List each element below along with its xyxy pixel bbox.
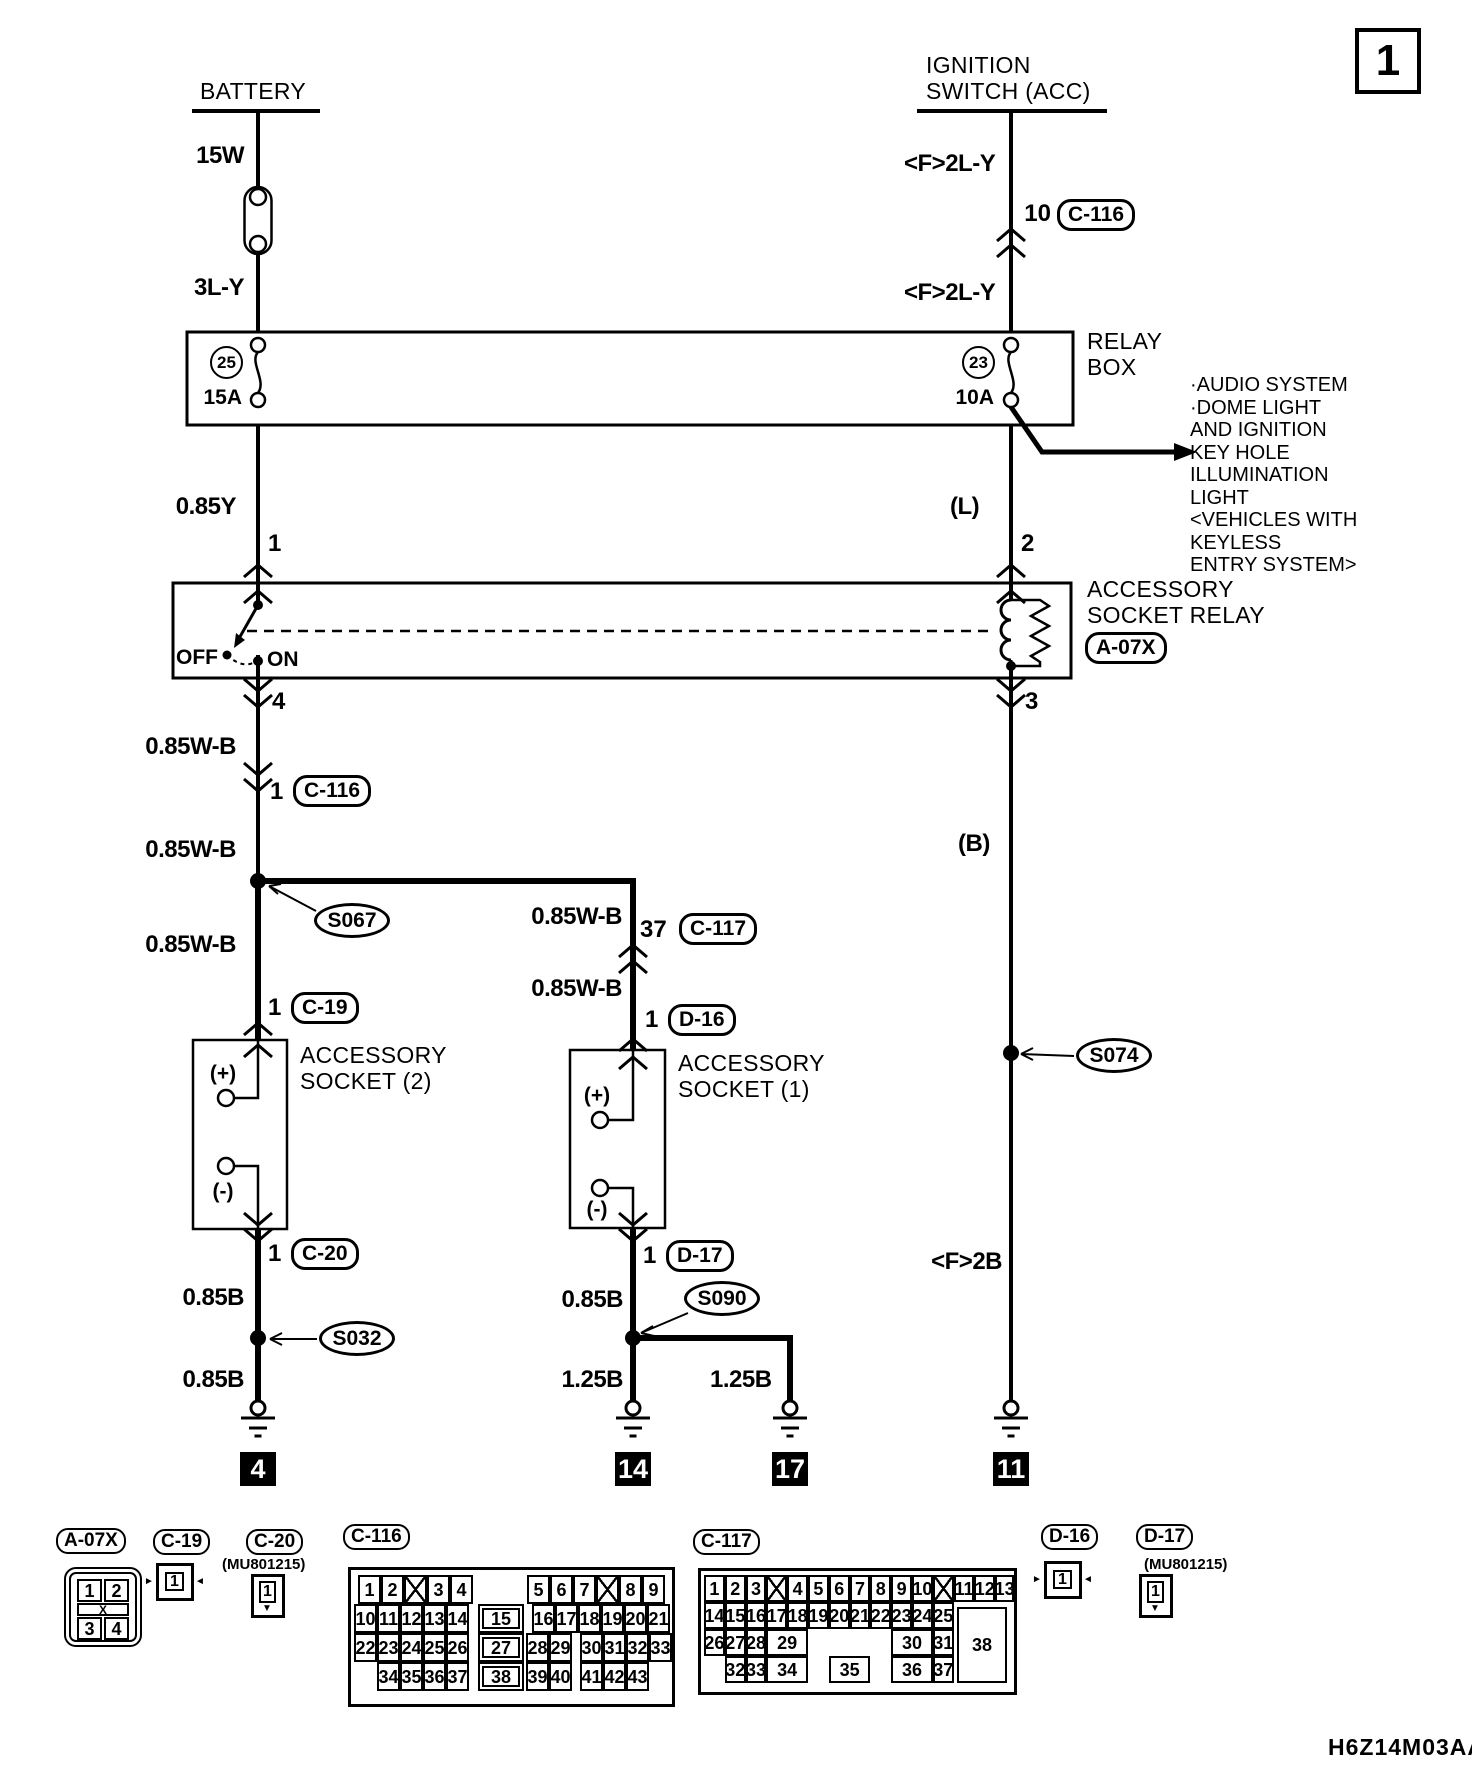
- connector-pin: 3: [746, 1575, 767, 1602]
- connector-pin: 6: [829, 1575, 850, 1602]
- wire-label-085b-3: 0.85B: [547, 1286, 623, 1314]
- connector-pin: 11: [377, 1604, 400, 1633]
- splice-s074: S074: [1076, 1038, 1152, 1073]
- connector-pin: 6: [550, 1575, 573, 1604]
- connector-tag-c117: C-117: [679, 913, 757, 945]
- connector-pin: 40: [549, 1662, 572, 1691]
- bottom-tag-c117: C-117: [693, 1529, 760, 1555]
- socket2-minus-label: (-): [200, 1180, 246, 1204]
- connector-pin: 33: [649, 1633, 672, 1662]
- wire-label-125b-2: 1.25B: [710, 1366, 772, 1394]
- blocked-pin-icon: [933, 1575, 954, 1602]
- connector-pin: 34: [766, 1656, 808, 1683]
- connector-pin: 1: [77, 1579, 102, 1602]
- connector-pin: 12: [400, 1604, 423, 1633]
- coil-junction-dot: [1006, 661, 1016, 671]
- connector-pin: 14: [446, 1604, 469, 1633]
- fuse-rating-10a: 10A: [938, 386, 994, 410]
- connector-pin: 29: [766, 1629, 808, 1656]
- connector-arrow-icon: ◄: [194, 1574, 206, 1589]
- connector-pin: 22: [870, 1602, 891, 1629]
- connector-pin: 9: [642, 1575, 665, 1604]
- fuse-25-icon: [251, 338, 265, 407]
- wire-label-b: (B): [958, 830, 990, 858]
- blocked-pin-icon: [766, 1575, 787, 1602]
- connector-tag-d17: D-17: [666, 1240, 734, 1272]
- relay-off-label: OFF: [160, 646, 218, 670]
- connector-pin: 31: [933, 1629, 954, 1656]
- connector-pin: 13: [423, 1604, 446, 1633]
- splice-s032: S032: [319, 1321, 395, 1356]
- connector-pin: 22: [354, 1633, 377, 1662]
- bottom-tag-c19: C-19: [153, 1529, 210, 1555]
- relay-pin-3: 3: [1025, 688, 1038, 716]
- relay-box-label: RELAY BOX: [1087, 328, 1162, 380]
- connector-pin: 36: [423, 1662, 446, 1691]
- socket1-minus-label: (-): [574, 1198, 620, 1222]
- connector-pin: 5: [808, 1575, 829, 1602]
- connector-pin: 31: [603, 1633, 626, 1662]
- wire-label-3l-y: 3L-Y: [150, 274, 244, 302]
- connector-pin: 2: [104, 1579, 129, 1602]
- connector-tail-icon: ▼: [260, 1603, 274, 1615]
- connector-arrow-icon: ►: [143, 1574, 155, 1589]
- connector-tag-c116-top: C-116: [1057, 199, 1135, 231]
- connector-pin: 37: [933, 1656, 954, 1683]
- relay-pin-1: 1: [268, 530, 281, 558]
- connector-pin: 37: [446, 1662, 469, 1691]
- connector-pin: 39: [526, 1662, 549, 1691]
- connector-pin: 16: [746, 1602, 767, 1629]
- pinout-c20: 1▼: [251, 1574, 285, 1618]
- connector-pin: 32: [626, 1633, 649, 1662]
- connector-pin: 43: [626, 1662, 649, 1691]
- accessory-socket-1-label: ACCESSORY SOCKET (1): [678, 1050, 825, 1102]
- relay-pin-4: 4: [272, 688, 285, 716]
- connector-pin: 12: [974, 1575, 995, 1602]
- ignition-switch-source-label: IGNITION SWITCH (ACC): [926, 52, 1091, 104]
- connector-pin: X: [77, 1603, 129, 1616]
- ground-box-17: 17: [772, 1452, 808, 1486]
- pinout-c117: 1234567891011121314151617181920212223242…: [698, 1568, 1017, 1695]
- ground-box-4: 4: [240, 1452, 276, 1486]
- splice-s067: S067: [314, 903, 390, 938]
- connector-pin: 41: [580, 1662, 603, 1691]
- ground-icons: [241, 1401, 1028, 1436]
- wire-label-085wb-2: 0.85W-B: [130, 836, 236, 864]
- connector-pin: 8: [619, 1575, 642, 1604]
- connector-pin: 2: [725, 1575, 746, 1602]
- fuse-rating-15a: 15A: [186, 386, 242, 410]
- connector-pin: 23: [891, 1602, 912, 1629]
- connector-pin: 1: [704, 1575, 725, 1602]
- pin-1-c19: 1: [268, 994, 281, 1022]
- pinout-c19: 1►◄: [156, 1563, 194, 1601]
- connector-tag-c116-left: C-116: [293, 775, 371, 807]
- note-arrow-icon: [1011, 407, 1197, 461]
- c20-part-number: (MU801215): [222, 1556, 305, 1573]
- pinout-a07x: 12X34: [64, 1567, 142, 1647]
- wire-label-085wb-1: 0.85W-B: [130, 733, 236, 761]
- connector-pin: 27: [725, 1629, 746, 1656]
- connector-pin: 23: [377, 1633, 400, 1662]
- connector-pin: 7: [573, 1575, 596, 1604]
- connector-pin: 1: [259, 1581, 276, 1603]
- pin-10-label: 10: [1023, 200, 1051, 228]
- connector-pin: 1: [165, 1572, 184, 1591]
- connector-pin: 16: [532, 1604, 555, 1633]
- connector-pin: 38: [478, 1662, 524, 1691]
- connector-pin: 4: [787, 1575, 808, 1602]
- bottom-tag-a07x: A-07X: [56, 1528, 126, 1554]
- connector-pin: 33: [746, 1656, 767, 1683]
- connector-pin: 13: [995, 1575, 1014, 1602]
- connector-pin: 20: [829, 1602, 850, 1629]
- connector-pin: 32: [725, 1656, 746, 1683]
- wire-label-085b-2: 0.85B: [168, 1366, 244, 1394]
- bottom-tag-d17: D-17: [1136, 1524, 1193, 1550]
- connector-tag-c19: C-19: [291, 992, 359, 1024]
- d17-part-number: (MU801215): [1144, 1556, 1227, 1573]
- fuse-number-25: 25: [210, 346, 243, 379]
- ground-box-14: 14: [615, 1452, 651, 1486]
- accessory-socket-relay-label: ACCESSORY SOCKET RELAY: [1087, 576, 1265, 628]
- connector-pin: 36: [891, 1656, 933, 1683]
- wiring-diagram-svg: [0, 0, 1472, 1776]
- blocked-pin-icon: [596, 1575, 619, 1604]
- ground-box-11: 11: [993, 1452, 1029, 1486]
- blocked-pin-icon: [404, 1575, 427, 1604]
- battery-source-label: BATTERY: [200, 78, 306, 104]
- connector-pin: 21: [850, 1602, 871, 1629]
- connector-arrow-icon: ►: [1031, 1572, 1043, 1587]
- connector-pin: 14: [704, 1602, 725, 1629]
- splice-s090: S090: [684, 1281, 760, 1316]
- connector-pin: 25: [933, 1602, 954, 1629]
- connector-pin: 26: [446, 1633, 469, 1662]
- connector-pin: 5: [527, 1575, 550, 1604]
- connector-pin: 11: [954, 1575, 975, 1602]
- socket-terminal-icons: [218, 1090, 608, 1196]
- connector-pin: 15: [725, 1602, 746, 1629]
- pin-1-d16: 1: [645, 1006, 658, 1034]
- wire-label-085b-1: 0.85B: [168, 1284, 244, 1312]
- bottom-tag-c116: C-116: [343, 1524, 410, 1550]
- connector-pin: 35: [829, 1656, 871, 1683]
- connector-pin: 42: [603, 1662, 626, 1691]
- connector-pin: 27: [478, 1633, 524, 1662]
- pin-1-c20: 1: [268, 1240, 281, 1268]
- wire-label-085wb-3: 0.85W-B: [130, 931, 236, 959]
- connector-tag-c20: C-20: [291, 1238, 359, 1270]
- connector-pin: 24: [912, 1602, 933, 1629]
- connector-pin: 17: [766, 1602, 787, 1629]
- connector-pin: 2: [381, 1575, 404, 1604]
- connector-pin: 19: [601, 1604, 624, 1633]
- connector-pin: 38: [957, 1607, 1007, 1683]
- relay-on-label: ON: [267, 648, 299, 672]
- connector-pin: 10: [912, 1575, 933, 1602]
- fuse-number-23: 23: [962, 346, 995, 379]
- connector-pin: 30: [580, 1633, 603, 1662]
- connector-pin: 8: [870, 1575, 891, 1602]
- wire-label-f2l-y-1: <F>2L-Y: [904, 150, 995, 178]
- connector-tag-a07x: A-07X: [1085, 632, 1167, 664]
- connector-pin: 24: [400, 1633, 423, 1662]
- connector-tag-d16: D-16: [668, 1004, 736, 1036]
- fusible-link-icon: [245, 187, 272, 254]
- relay-box-outline: [187, 332, 1073, 425]
- connector-pin: 7: [850, 1575, 871, 1602]
- connector-pin: 30: [891, 1629, 933, 1656]
- connector-pin: 18: [578, 1604, 601, 1633]
- connector-pin: 20: [624, 1604, 647, 1633]
- socket2-plus-label: (+): [200, 1062, 246, 1086]
- connector-pin: 3: [427, 1575, 450, 1604]
- connector-pin: 1: [1053, 1570, 1072, 1589]
- connector-pin: 29: [549, 1633, 572, 1662]
- wiring-diagram-page: 1 BATTERY IGNITION SWITCH (ACC) 15W 3L-Y…: [0, 0, 1472, 1776]
- wire-label-125b-1: 1.25B: [544, 1366, 623, 1394]
- connector-pin: 1: [358, 1575, 381, 1604]
- socket1-plus-label: (+): [574, 1084, 620, 1108]
- wire-label-085y: 0.85Y: [148, 493, 236, 521]
- connector-pin: 25: [423, 1633, 446, 1662]
- connector-pin: 34: [377, 1662, 400, 1691]
- connector-pin: 26: [704, 1629, 725, 1656]
- connector-arrow-icon: ◄: [1082, 1572, 1094, 1587]
- wire-label-15w: 15W: [150, 142, 244, 170]
- connector-pin: 21: [647, 1604, 670, 1633]
- wire-label-l: (L): [950, 493, 979, 521]
- resistor-icon: [1011, 600, 1049, 666]
- fuse-23-icon: [1004, 338, 1018, 407]
- wire-label-f2b: <F>2B: [928, 1248, 1002, 1276]
- connector-pin: 35: [400, 1662, 423, 1691]
- connector-pin: 17: [555, 1604, 578, 1633]
- bottom-tag-c20: C-20: [246, 1529, 303, 1555]
- circuit-note-text: ·AUDIO SYSTEM ·DOME LIGHT AND IGNITION K…: [1190, 374, 1357, 577]
- relay-pin-2: 2: [1021, 530, 1034, 558]
- pinout-d16: 1►◄: [1044, 1561, 1082, 1599]
- wire-label-085wb-4: 0.85W-B: [516, 903, 622, 931]
- connector-tail-icon: ▼: [1148, 1603, 1162, 1615]
- connector-pin: 28: [526, 1633, 549, 1662]
- pinout-c116: 1234567891011121314151617181920212223242…: [348, 1567, 675, 1707]
- pinout-d17: 1▼: [1139, 1574, 1173, 1618]
- connector-pin: 19: [808, 1602, 829, 1629]
- pin-37-label: 37: [640, 916, 667, 944]
- pin-1-d17: 1: [643, 1242, 656, 1270]
- pin-1-c116: 1: [270, 778, 283, 806]
- document-code: H6Z14M03AA: [1328, 1734, 1472, 1761]
- connector-pin: 3: [77, 1617, 102, 1640]
- connector-pin: 28: [746, 1629, 767, 1656]
- wire-label-085wb-5: 0.85W-B: [516, 975, 622, 1003]
- wire-label-f2l-y-2: <F>2L-Y: [904, 279, 995, 307]
- relay-coil-icon: [1001, 600, 1011, 666]
- connector-pin: 9: [891, 1575, 912, 1602]
- connector-pin: 4: [450, 1575, 473, 1604]
- connector-pin: 4: [104, 1617, 129, 1640]
- connector-pin: 15: [478, 1604, 524, 1633]
- accessory-socket-2-label: ACCESSORY SOCKET (2): [300, 1042, 447, 1094]
- bottom-tag-d16: D-16: [1041, 1524, 1098, 1550]
- connector-pin: 18: [787, 1602, 808, 1629]
- connector-pin: 10: [354, 1604, 377, 1633]
- sheet-number-box: 1: [1355, 28, 1421, 94]
- connector-pin: 1: [1147, 1581, 1164, 1603]
